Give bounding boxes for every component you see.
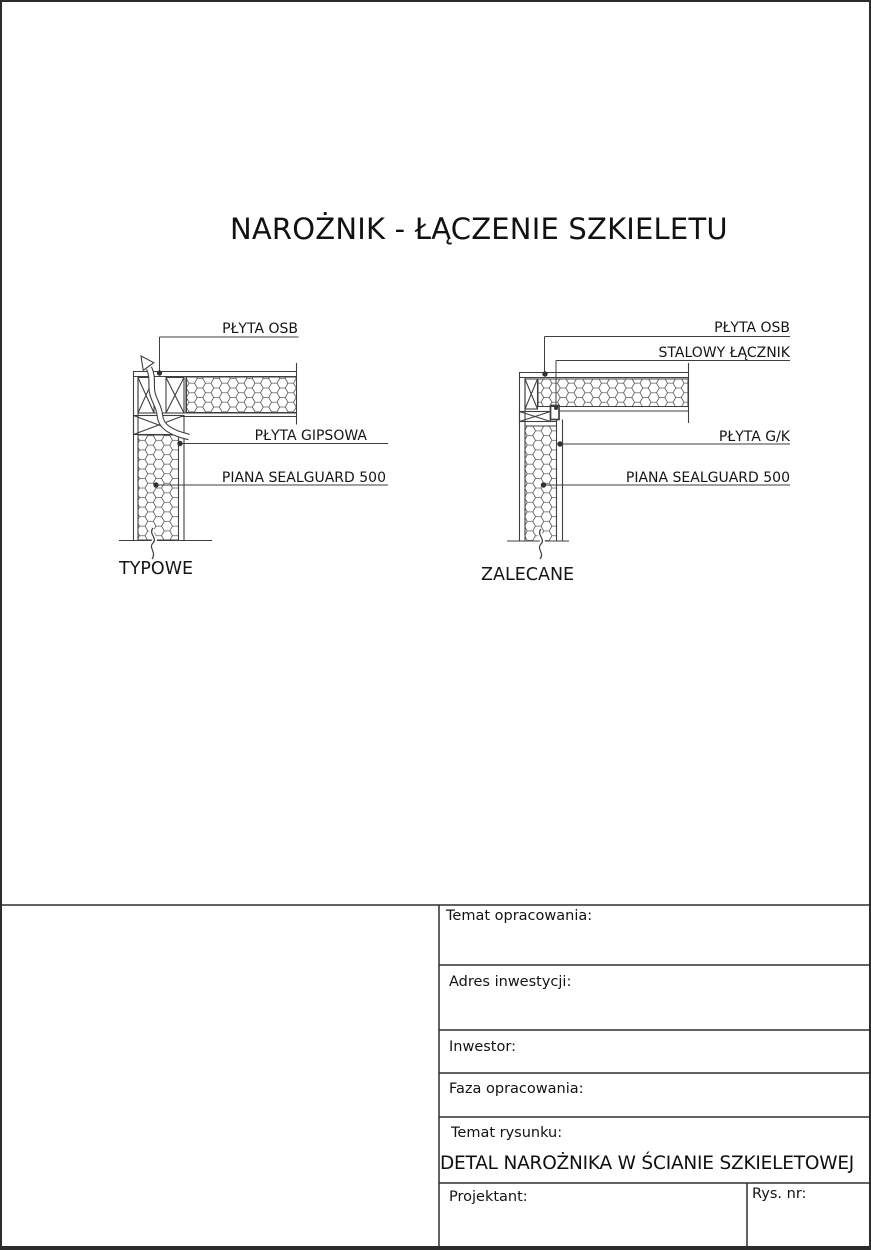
titleblock-field-projektant: Projektant: [449, 1189, 528, 1206]
titleblock-field-rys-nr: Rys. nr: [752, 1186, 806, 1203]
air-leak-arrow-icon [141, 356, 189, 437]
right-horizontal-insulation-hatch [538, 379, 688, 407]
titleblock-field-faza-opracowania: Faza opracowania: [449, 1081, 584, 1098]
left-horizontal-insulation-hatch [187, 377, 297, 413]
titleblock-field-temat-rysunku: Temat rysunku: [451, 1125, 562, 1142]
sheet-linework [2, 2, 869, 1246]
right-caption: ZALECANE [481, 565, 574, 585]
right-detail-linework [507, 363, 689, 559]
titleblock-drawing-title: DETAL NAROŻNIKA W ŚCIANIE SZKIELETOWEJ [440, 1153, 854, 1174]
left-vertical-insulation-hatch [138, 435, 179, 540]
right-label-gk: PŁYTA G/K [559, 429, 790, 445]
left-label-gypsum: PŁYTA GIPSOWA [178, 428, 367, 444]
right-label-foam: PIANA SEALGUARD 500 [544, 470, 790, 486]
titleblock-field-inwestor: Inwestor: [449, 1039, 516, 1056]
sheet-title: NAROŻNIK - ŁĄCZENIE SZKIELETU [230, 213, 728, 246]
left-label-osb: PŁYTA OSB [160, 321, 298, 337]
drawing-sheet: NAROŻNIK - ŁĄCZENIE SZKIELETU PŁYTA OSB … [0, 0, 871, 1250]
titleblock-field-adres-inwestycji: Adres inwestycji: [449, 974, 571, 991]
left-label-foam: PIANA SEALGUARD 500 [156, 470, 386, 486]
right-label-osb: PŁYTA OSB [545, 320, 790, 336]
titleblock-field-temat-opracowania: Temat opracowania: [446, 908, 592, 925]
left-caption: TYPOWE [119, 559, 193, 579]
left-detail-linework [119, 363, 297, 559]
right-label-connector: STALOWY ŁĄCZNIK [556, 345, 790, 361]
title-block-grid [2, 905, 869, 1246]
